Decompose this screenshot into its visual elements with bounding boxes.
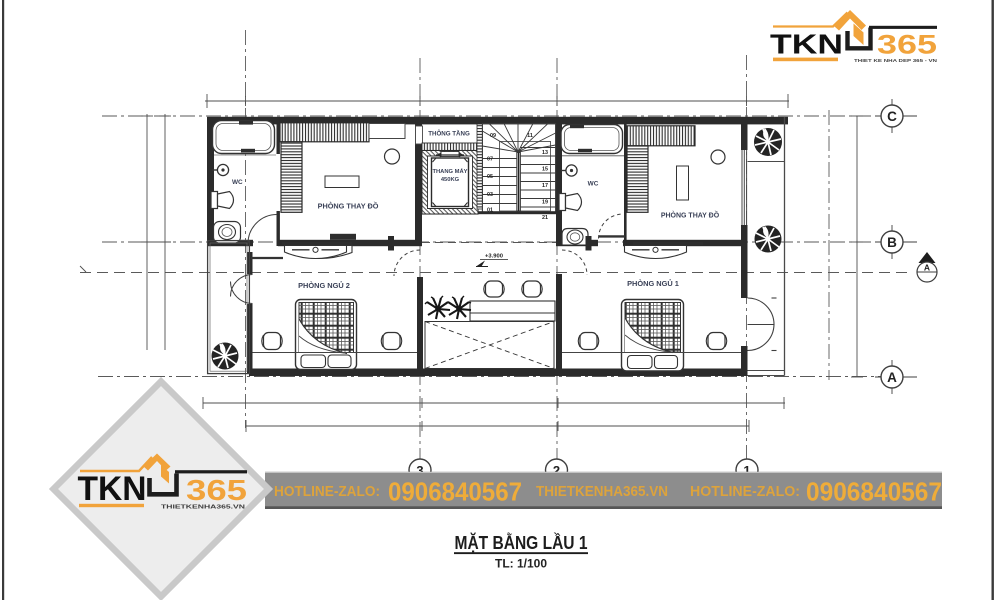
svg-text:PHÒNG THAY ĐỒ: PHÒNG THAY ĐỒ bbox=[318, 201, 379, 211]
svg-text:TKN: TKN bbox=[78, 470, 147, 508]
svg-text:01: 01 bbox=[487, 208, 493, 214]
svg-text:WC: WC bbox=[588, 181, 599, 188]
svg-text:THANG MÁY: THANG MÁY bbox=[432, 168, 467, 175]
svg-text:09: 09 bbox=[490, 133, 496, 139]
svg-text:TKN: TKN bbox=[770, 29, 843, 60]
svg-text:21: 21 bbox=[542, 215, 548, 221]
svg-text:THIET KE NHA DEP 365 - VN: THIET KE NHA DEP 365 - VN bbox=[854, 58, 938, 64]
svg-text:0906840567: 0906840567 bbox=[806, 479, 942, 507]
svg-text:A: A bbox=[887, 370, 897, 385]
svg-text:THÔNG TẦNG: THÔNG TẦNG bbox=[428, 130, 470, 138]
svg-text:B: B bbox=[887, 235, 897, 250]
svg-text:13: 13 bbox=[542, 150, 548, 156]
svg-text:HOTLINE-ZALO:: HOTLINE-ZALO: bbox=[690, 484, 800, 500]
svg-text:HOTLINE-ZALO:: HOTLINE-ZALO: bbox=[274, 484, 380, 500]
svg-text:11: 11 bbox=[527, 133, 533, 139]
svg-text:+3.900: +3.900 bbox=[485, 254, 503, 260]
svg-text:05: 05 bbox=[487, 174, 493, 180]
svg-text:365: 365 bbox=[877, 30, 937, 60]
svg-text:0906840567: 0906840567 bbox=[388, 479, 522, 507]
svg-text:PHÒNG NGỦ 1: PHÒNG NGỦ 1 bbox=[627, 279, 679, 288]
svg-text:TL: 1/100: TL: 1/100 bbox=[495, 557, 547, 571]
svg-text:PHÒNG NGỦ 2: PHÒNG NGỦ 2 bbox=[298, 281, 350, 290]
svg-text:19: 19 bbox=[542, 200, 548, 206]
svg-text:MẶT BẰNG LẦU 1: MẶT BẰNG LẦU 1 bbox=[455, 532, 588, 553]
svg-text:15: 15 bbox=[542, 167, 548, 173]
svg-text:17: 17 bbox=[542, 183, 548, 189]
svg-text:A: A bbox=[924, 263, 930, 273]
svg-text:THIETKENHA365.VN: THIETKENHA365.VN bbox=[161, 505, 245, 511]
svg-text:WC: WC bbox=[232, 179, 243, 186]
svg-text:03: 03 bbox=[487, 192, 493, 198]
svg-text:365: 365 bbox=[186, 475, 247, 507]
svg-text:THIETKENHA365.VN: THIETKENHA365.VN bbox=[536, 484, 668, 500]
svg-text:C: C bbox=[887, 109, 897, 124]
svg-text:07: 07 bbox=[487, 157, 493, 163]
svg-text:450KG: 450KG bbox=[441, 177, 460, 183]
